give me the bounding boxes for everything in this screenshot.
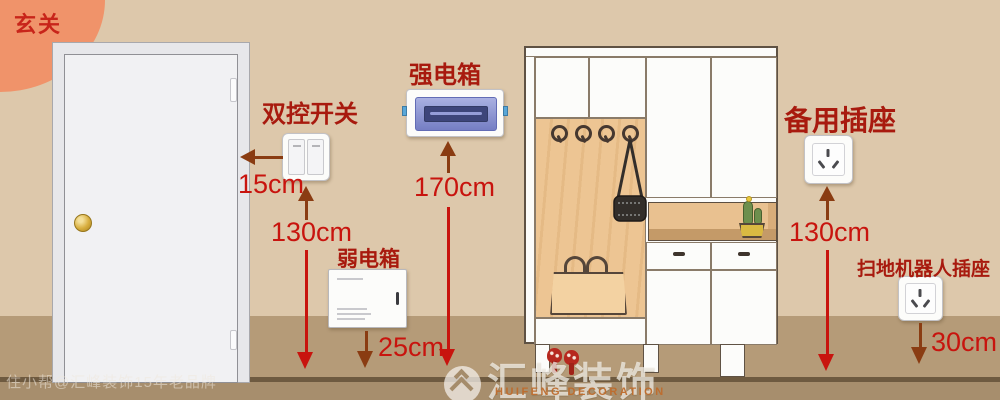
weak-electric-box-icon [328,269,407,328]
switch-rocker [307,139,324,175]
spare-socket-height-value: 130cm [789,217,870,248]
tote-bag-icon [550,272,627,315]
plant-pot-icon [739,223,765,238]
switch-offset-arrow-shaft [255,156,283,159]
cabinet-upper-door [535,57,589,118]
switch-offset-arrowhead [240,149,255,165]
coat-hook-icon [575,125,588,145]
bench-base [535,318,646,345]
switch-floor-arrowhead [297,352,313,369]
cabinet-drawer [711,242,777,270]
strong-box-height-value: 170cm [414,172,495,203]
tote-handle [586,256,608,274]
robot-socket-arrowhead-down [911,347,927,364]
box-tab [402,106,407,116]
handbag-icon [608,136,652,228]
strong-box-label: 强电箱 [409,55,481,90]
spare-socket-floor-line [826,250,829,354]
spare-socket-label: 备用插座 [784,99,896,139]
cabinet-tall-door [711,57,777,198]
door-hinge-bottom [230,330,237,350]
cabinet-tall-door [646,57,711,198]
spare-socket-floor-arrowhead [818,354,834,371]
brand-watermark-en: HUIFENG DECORATION [495,386,666,398]
robot-socket-height-value: 30cm [931,327,997,358]
entry-cabinet [524,46,778,344]
door-hinge-top [230,78,237,102]
drawer-handle [738,252,750,256]
cabinet-drawer [646,242,711,270]
strong-box-arrowhead-up [440,141,456,156]
spare-socket-icon [804,135,853,184]
flower-icon [746,196,752,202]
plant-icon [754,208,762,225]
drawer-handle [673,252,685,256]
entryway-electrical-layout-diagram: 玄关 [0,0,1000,400]
cabinet-upper-door [589,57,646,118]
switch-floor-line [305,250,308,353]
weak-box-height-value: 25cm [378,332,444,363]
doorknob-icon [74,214,92,232]
tote-handle [564,256,586,274]
plant-icon [743,201,753,226]
strong-electric-box-icon [406,89,504,137]
switch-offset-value: 15cm [238,169,304,200]
robot-socket-label: 扫地机器人插座 [857,254,990,281]
weak-box-label: 弱电箱 [337,243,400,273]
robot-socket-arrow-shaft [919,323,922,347]
cabinet-leg [720,344,745,377]
badge-label: 玄关 [14,7,62,39]
cabinet-lower-door [646,270,711,345]
brand-logo-icon [444,366,481,400]
switch-label: 双控开关 [262,94,358,129]
cabinet-lower-door [711,270,777,345]
coat-hook-icon [551,125,564,145]
weak-box-arrowhead-down [357,351,373,368]
strong-box-floor-line [447,207,450,349]
box-tab [503,106,508,116]
credit-watermark: 住小帮@汇峰装饰15年老品牌 [6,371,217,392]
weak-box-arrow-shaft [365,331,368,351]
robot-socket-icon [898,276,943,321]
box-handle [396,292,399,305]
spare-socket-arrowhead-up [819,186,835,201]
strong-box-arrow-shaft [447,155,450,173]
